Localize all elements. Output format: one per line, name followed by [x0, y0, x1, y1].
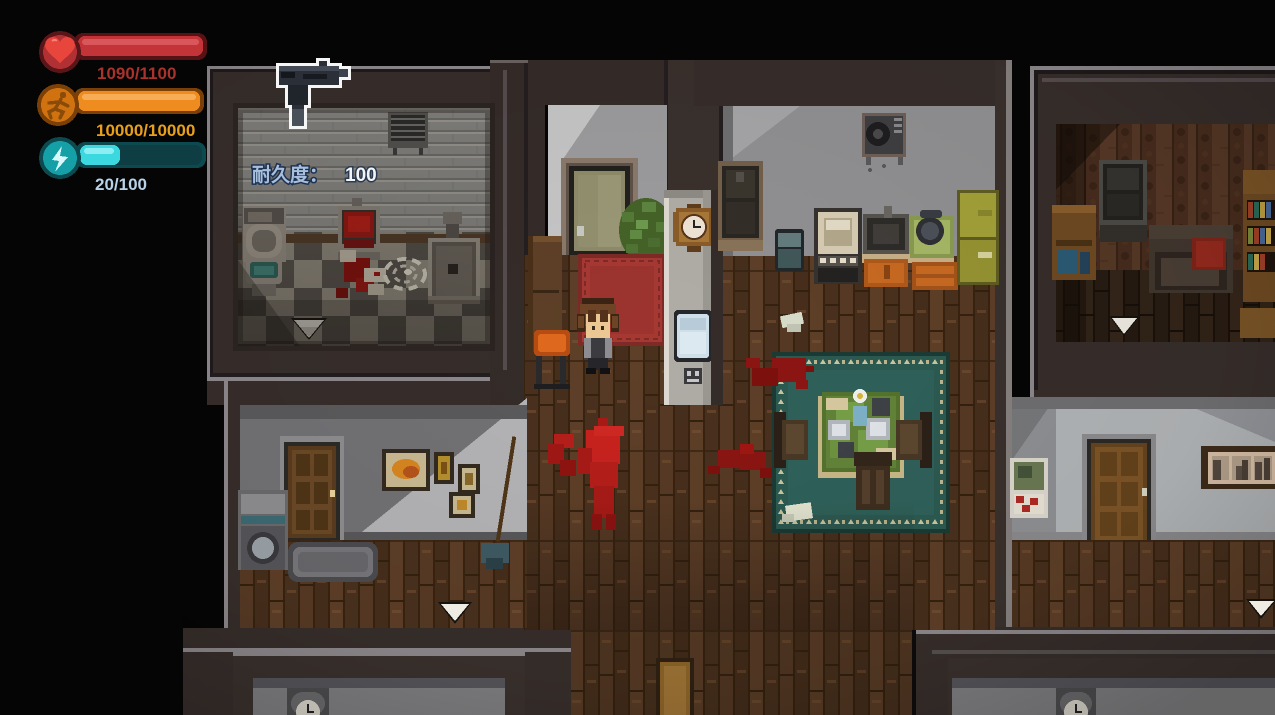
- svg-text:100: 100: [345, 165, 377, 186]
- svg-text:20/100: 20/100: [95, 175, 147, 194]
- svg-text:1090/1100: 1090/1100: [97, 64, 176, 83]
- svg-text:耐久度：: 耐久度：: [252, 163, 328, 186]
- svg-text:10000/10000: 10000/10000: [96, 121, 195, 140]
